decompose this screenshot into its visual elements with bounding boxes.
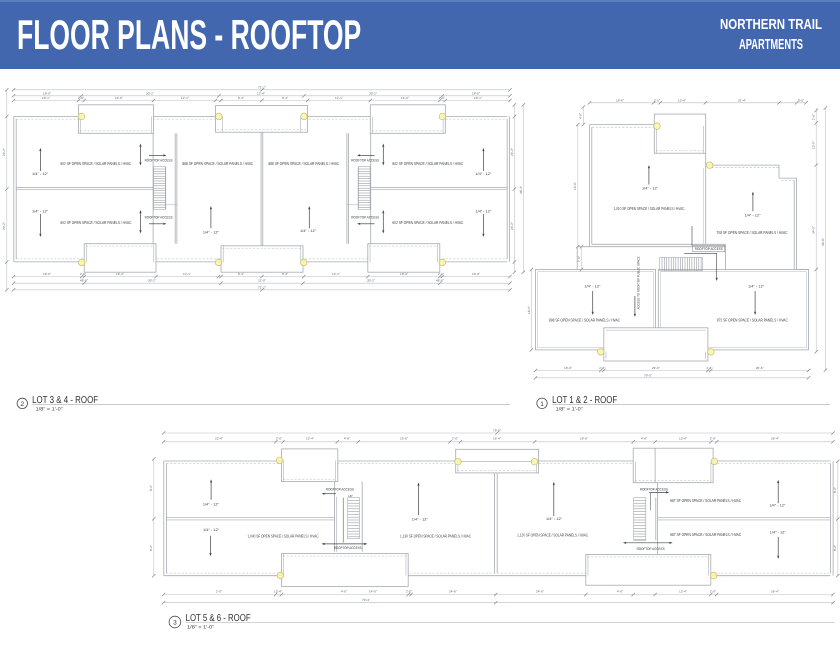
svg-text:11'-0": 11'-0" [258,279,266,283]
svg-text:9'-0": 9'-0" [798,98,804,102]
svg-text:2'-0": 2'-0" [654,98,660,102]
svg-text:8'-2": 8'-2" [149,545,153,551]
svg-text:972 SF OPEN SPACE / SOLAR PANE: 972 SF OPEN SPACE / SOLAR PANELS / HVAC [717,317,788,322]
svg-text:2'-0": 2'-0" [438,272,444,276]
svg-text:18'-0": 18'-0" [527,306,531,314]
svg-text:79'-4": 79'-4" [362,598,370,602]
svg-text:ROOFTOP ACCESS: ROOFTOP ACCESS [334,546,363,550]
svg-text:13'-4": 13'-4" [678,98,686,102]
svg-text:602 SF OPEN SPACE / SOLAR PANE: 602 SF OPEN SPACE / SOLAR PANELS / HVAC [392,161,463,166]
svg-text:ROOFTOP ACCESS: ROOFTOP ACCESS [145,159,174,163]
svg-text:13'-4": 13'-4" [306,437,314,441]
svg-text:13'-0": 13'-0" [812,141,816,149]
svg-text:1/8" = 1'-0": 1/8" = 1'-0" [556,406,583,412]
svg-text:2'-6": 2'-6" [812,114,816,120]
svg-text:ROOFTOP ACCESS: ROOFTOP ACCESS [326,488,355,492]
svg-text:1/4" - 12": 1/4" - 12" [203,230,220,234]
svg-text:ROOFTOP ACCESS: ROOFTOP ACCESS [145,216,174,220]
svg-text:3: 3 [173,620,177,627]
svg-text:46'-6": 46'-6" [436,279,444,283]
svg-text:24'-2": 24'-2" [2,148,6,156]
svg-text:2'-0": 2'-0" [216,589,222,593]
svg-text:1,010 SF OPEN SPACE / SOLAR PA: 1,010 SF OPEN SPACE / SOLAR PANELS / HVA… [614,206,685,211]
svg-text:9'-4": 9'-4" [282,272,288,276]
svg-text:14'-6": 14'-6" [401,96,409,100]
svg-text:16'-4": 16'-4" [493,437,501,441]
svg-text:22'-4": 22'-4" [215,437,223,441]
svg-text:18'-1": 18'-1" [42,96,50,100]
svg-text:1,120 SF OPEN SPACE / SOLAR PA: 1,120 SF OPEN SPACE / SOLAR PANELS / HVA… [517,532,588,537]
svg-text:4'-6": 4'-6" [579,113,583,119]
svg-text:2'-0": 2'-0" [452,437,458,441]
svg-text:602 SF OPEN SPACE / SOLAR PANE: 602 SF OPEN SPACE / SOLAR PANELS / HVAC [60,161,131,166]
svg-text:18'-0": 18'-0" [43,91,51,95]
svg-text:14'-6": 14'-6" [369,589,377,593]
svg-text:4'-6": 4'-6" [344,437,350,441]
svg-text:1/4" - 12": 1/4" - 12" [203,528,220,532]
svg-text:30'-2": 30'-2" [148,279,156,283]
svg-text:2'-0": 2'-0" [710,589,716,593]
svg-text:ROOFTOP ACCESS: ROOFTOP ACCESS [637,547,666,551]
svg-text:12'-1": 12'-1" [332,272,340,276]
svg-text:2'-0": 2'-0" [406,589,412,593]
svg-text:1/8" = 1'-0": 1/8" = 1'-0" [187,624,214,630]
svg-text:36'-8": 36'-8" [821,238,825,246]
svg-text:2'-0": 2'-0" [78,96,84,100]
svg-text:1,130 SF OPEN SPACE / SOLAR PA: 1,130 SF OPEN SPACE / SOLAR PANELS / HVA… [400,533,471,538]
svg-text:24'-2": 24'-2" [2,222,6,230]
svg-text:9'-4": 9'-4" [238,96,244,100]
svg-text:1,040 SF OPEN SPACE / SOLAR PA: 1,040 SF OPEN SPACE / SOLAR PANELS / HVA… [248,533,319,538]
svg-text:2'-6": 2'-6" [706,366,712,370]
svg-text:12'-1": 12'-1" [183,272,191,276]
svg-text:ROOFTOP ACCESS: ROOFTOP ACCESS [695,247,724,251]
svg-text:79'-0": 79'-0" [644,373,652,377]
svg-text:79'-8": 79'-8" [493,429,501,433]
svg-text:8'-2": 8'-2" [833,545,837,551]
svg-text:1/4" - 12": 1/4" - 12" [546,517,563,521]
svg-text:888 SF OPEN SPACE / SOLAR PANE: 888 SF OPEN SPACE / SOLAR PANELS / HVAC [182,161,253,166]
svg-text:8'-2": 8'-2" [833,487,837,493]
svg-text:1/4" - 12": 1/4" - 12" [584,284,601,288]
svg-text:46'-6": 46'-6" [80,279,88,283]
svg-text:18'-0": 18'-0" [564,366,572,370]
svg-text:13'-4": 13'-4" [274,589,282,593]
svg-text:19'-4": 19'-4" [116,272,124,276]
svg-text:888 SF OPEN SPACE / SOLAR PANE: 888 SF OPEN SPACE / SOLAR PANELS / HVAC [268,161,339,166]
svg-text:13'-4": 13'-4" [679,437,687,441]
svg-text:16'-6": 16'-6" [400,437,408,441]
svg-text:ROOFTOP ACCESS: ROOFTOP ACCESS [640,487,669,491]
svg-text:18'-1": 18'-1" [474,96,482,100]
svg-text:18'-0": 18'-0" [472,272,480,276]
svg-text:1/4" - 12": 1/4" - 12" [32,172,49,176]
svg-text:602 SF OPEN SPACE / SOLAR PANE: 602 SF OPEN SPACE / SOLAR PANELS / HVAC [392,220,463,225]
svg-text:ACCESS TO ROOFTOP PUBLIC SPACE: ACCESS TO ROOFTOP PUBLIC SPACE [637,257,641,310]
svg-text:2'-0": 2'-0" [439,96,445,100]
svg-text:30'-2": 30'-2" [367,279,375,283]
svg-text:24'-6": 24'-6" [449,589,457,593]
svg-text:1/4" - 12": 1/4" - 12" [412,517,429,521]
svg-text:71'-2": 71'-2" [258,285,266,289]
svg-text:18'-0": 18'-0" [472,91,480,95]
svg-text:UP: UP [348,494,352,498]
svg-text:12'-1": 12'-1" [335,96,343,100]
svg-text:18'-0": 18'-0" [43,272,51,276]
svg-text:24'-6": 24'-6" [536,589,544,593]
svg-text:12'-1": 12'-1" [181,96,189,100]
svg-text:1/4" - 12": 1/4" - 12" [748,284,765,288]
svg-text:ROOFTOP ACCESS: ROOFTOP ACCESS [351,216,380,220]
svg-text:18'-6": 18'-6" [616,98,624,102]
svg-text:1/4" - 12": 1/4" - 12" [770,531,787,535]
svg-text:30'-2": 30'-2" [369,91,377,95]
svg-text:708 SF OPEN SPACE / SOLAR PANE: 708 SF OPEN SPACE / SOLAR PANELS / HVAC [717,230,788,235]
svg-text:1/4" - 12": 1/4" - 12" [769,504,786,508]
svg-text:1/4" - 12": 1/4" - 12" [203,502,220,506]
svg-text:31'-4": 31'-4" [738,98,746,102]
svg-text:30'-2": 30'-2" [146,91,154,95]
svg-text:14'-6": 14'-6" [115,96,123,100]
svg-text:9'-4": 9'-4" [282,96,288,100]
svg-text:26'-4": 26'-4" [771,589,779,593]
svg-text:24'-2": 24'-2" [510,148,514,156]
svg-text:1/4" - 12": 1/4" - 12" [475,209,492,213]
svg-text:13'-4": 13'-4" [679,589,687,593]
svg-text:2'-0": 2'-0" [276,437,282,441]
svg-text:1/4" - 12": 1/4" - 12" [745,213,762,217]
svg-text:16'-6": 16'-6" [573,182,577,190]
svg-text:26'-4": 26'-4" [771,437,779,441]
svg-text:4'-6": 4'-6" [617,589,623,593]
svg-text:1: 1 [540,401,544,408]
svg-text:687 SF OPEN SPACE / SOLAR PANE: 687 SF OPEN SPACE / SOLAR PANELS / HVAC [670,532,741,537]
svg-text:1/4" - 12": 1/4" - 12" [642,187,659,191]
svg-text:48'-4": 48'-4" [519,186,523,194]
svg-text:8'-2": 8'-2" [149,485,153,491]
svg-text:1/4" - 12": 1/4" - 12" [32,209,49,213]
svg-text:4'-6": 4'-6" [641,437,647,441]
svg-text:ROOFTOP ACCESS: ROOFTOP ACCESS [351,159,380,163]
svg-text:34'-0": 34'-0" [812,226,816,234]
svg-text:1/4" - 12": 1/4" - 12" [300,229,317,233]
svg-text:1/4" - 12": 1/4" - 12" [475,172,492,176]
svg-text:71'-2": 71'-2" [258,85,266,89]
svg-text:9'-4": 9'-4" [238,272,244,276]
svg-text:687 SF OPEN SPACE / SOLAR PANE: 687 SF OPEN SPACE / SOLAR PANELS / HVAC [670,498,741,503]
svg-text:18'-6": 18'-6" [580,437,588,441]
svg-text:602 SF OPEN SPACE / SOLAR PANE: 602 SF OPEN SPACE / SOLAR PANELS / HVAC [60,220,131,225]
svg-text:2: 2 [20,401,24,408]
svg-text:19'-4": 19'-4" [400,272,408,276]
svg-text:2'-0": 2'-0" [80,272,86,276]
svg-text:29'-6": 29'-6" [652,366,660,370]
svg-text:4'-6": 4'-6" [341,589,347,593]
svg-text:2'-6": 2'-6" [599,366,605,370]
svg-text:1/8" = 1'-0": 1/8" = 1'-0" [36,406,63,412]
svg-text:24'-2": 24'-2" [510,222,514,230]
svg-text:12'-4": 12'-4" [257,91,265,95]
svg-text:26'-6": 26'-6" [756,366,764,370]
svg-text:2'-0": 2'-0" [710,437,716,441]
svg-text:898 SF OPEN SPACE / SOLAR PANE: 898 SF OPEN SPACE / SOLAR PANELS / HVAC [549,317,620,322]
